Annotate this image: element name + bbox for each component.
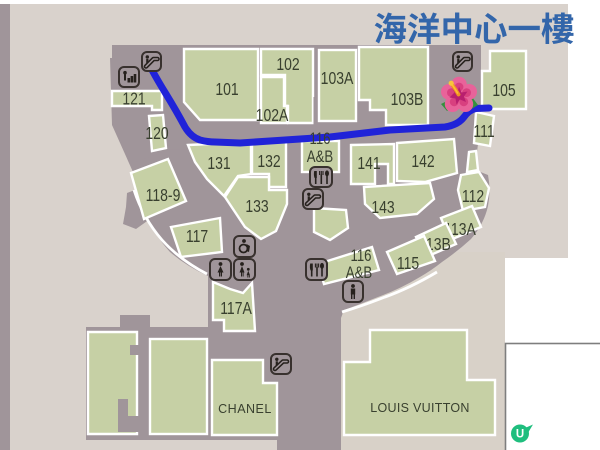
svg-text:112: 112 (462, 188, 484, 207)
svg-text:142: 142 (411, 153, 434, 172)
svg-text:131: 131 (207, 155, 231, 174)
svg-text:105: 105 (492, 82, 516, 101)
svg-text:115: 115 (397, 255, 419, 274)
svg-text:133: 133 (245, 198, 269, 217)
svg-text:117: 117 (186, 228, 208, 247)
svg-text:117A: 117A (220, 300, 252, 319)
svg-text:U: U (516, 429, 524, 441)
svg-text:120: 120 (145, 125, 169, 144)
svg-text:102: 102 (276, 56, 299, 75)
svg-text:101: 101 (215, 81, 239, 100)
svg-text:143: 143 (371, 199, 395, 218)
svg-text:111: 111 (473, 123, 494, 142)
svg-text:141: 141 (357, 155, 381, 174)
svg-text:CHANEL: CHANEL (218, 402, 272, 416)
svg-text:118-9: 118-9 (146, 187, 181, 206)
svg-text:102A: 102A (256, 107, 289, 126)
svg-text:LOUIS VUITTON: LOUIS VUITTON (370, 401, 470, 415)
svg-text:103A: 103A (321, 70, 354, 89)
svg-text:132: 132 (257, 153, 280, 172)
svg-text:121: 121 (122, 90, 146, 109)
svg-text:116: 116 (350, 247, 371, 266)
svg-text:116: 116 (309, 130, 330, 149)
svg-text:A&B: A&B (346, 264, 372, 283)
svg-text:103B: 103B (391, 91, 424, 110)
svg-text:A&B: A&B (307, 148, 333, 167)
